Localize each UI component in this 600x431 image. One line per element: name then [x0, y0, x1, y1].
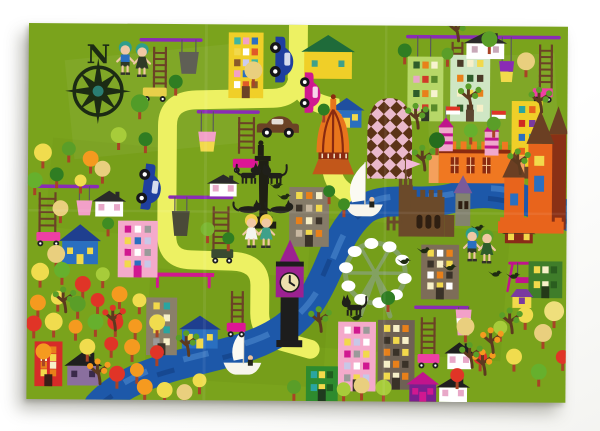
tree: [544, 301, 564, 328]
tree: [354, 377, 370, 400]
map-illustration: N: [26, 23, 568, 403]
tree: [87, 314, 103, 337]
kid: [243, 214, 259, 248]
apartment-building: [306, 366, 338, 401]
tree: [506, 349, 522, 372]
house: [301, 35, 355, 79]
tree: [26, 315, 41, 338]
tree: [222, 232, 234, 251]
apartment-building: [421, 245, 459, 300]
tree: [337, 382, 351, 402]
tree: [556, 350, 568, 371]
tree: [102, 217, 114, 236]
tree: [45, 313, 63, 338]
tree: [531, 364, 547, 387]
tree: [137, 379, 153, 402]
tree: [124, 339, 140, 362]
compass-north-label: N: [86, 40, 110, 70]
tree: [176, 384, 192, 403]
tree: [31, 263, 49, 288]
apartment-building: [118, 221, 158, 278]
tree: [96, 267, 110, 288]
apartment-building: [528, 261, 562, 298]
tree: [534, 324, 552, 349]
tree: [517, 307, 533, 330]
tree: [30, 295, 46, 318]
tree: [34, 143, 52, 168]
tree: [157, 382, 173, 403]
tree: [287, 380, 301, 401]
car: [257, 116, 299, 138]
photo-backdrop: N: [0, 0, 600, 431]
tree: [68, 320, 82, 341]
tree: [128, 319, 142, 340]
bird: [277, 194, 291, 200]
branchy-tree: [102, 305, 126, 330]
tree: [27, 172, 43, 195]
city-map-canvas: N: [26, 23, 568, 403]
apartment-building: [289, 187, 329, 247]
kid: [258, 214, 274, 248]
tree: [132, 293, 146, 314]
tree: [54, 262, 70, 285]
house: [207, 174, 240, 196]
tree: [104, 337, 118, 358]
tree: [91, 293, 105, 314]
tree: [75, 276, 91, 299]
